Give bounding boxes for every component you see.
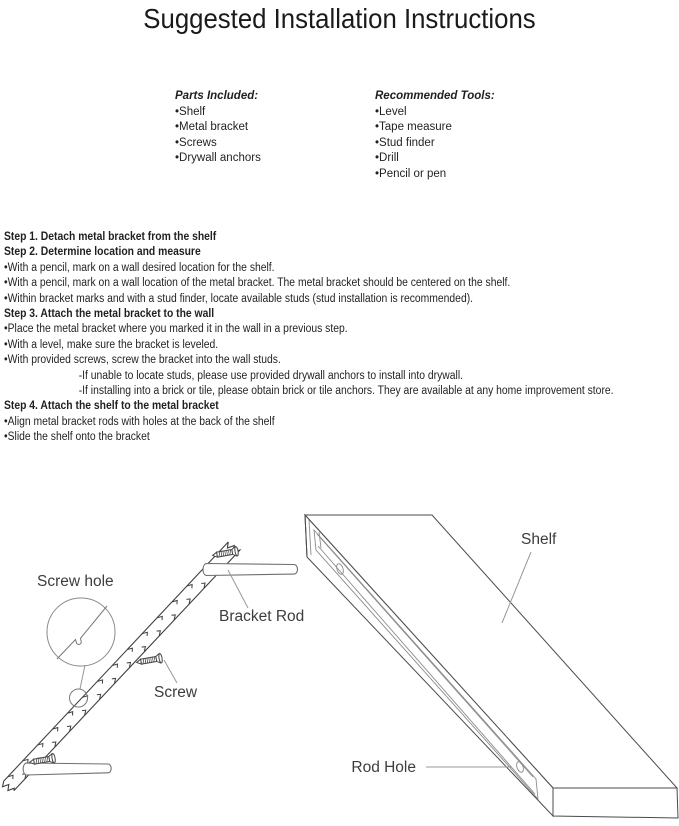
- tools-heading: Recommended Tools:: [375, 89, 495, 105]
- recommended-tools-list: Recommended Tools: •Level •Tape measure …: [375, 89, 495, 182]
- keyhole-slot-profile: [57, 606, 107, 659]
- screw-hole-circle: [70, 689, 88, 707]
- rail-bottom-jagged-cut: [0, 780, 15, 795]
- list-item: •Shelf: [175, 105, 261, 121]
- list-item: •Drywall anchors: [175, 151, 261, 167]
- screw-hole-label: Screw hole: [37, 573, 114, 590]
- step-heading: Step 2. Determine location and measure: [4, 245, 670, 260]
- step-bullet: •Within bracket marks and with a stud fi…: [4, 292, 670, 307]
- list-item: •Stud finder: [375, 136, 495, 152]
- bracket-rod-label: Bracket Rod: [219, 608, 304, 625]
- list-item: •Level: [375, 105, 495, 121]
- step-heading: Step 3. Attach the metal bracket to the …: [4, 307, 670, 322]
- step-subnote: -If unable to locate studs, please use p…: [4, 369, 670, 384]
- step-heading: Step 4. Attach the shelf to the metal br…: [4, 399, 670, 414]
- screw-middle: [136, 653, 163, 667]
- screw-label: Screw: [154, 684, 198, 701]
- parts-heading: Parts Included:: [175, 89, 261, 105]
- list-item: •Tape measure: [375, 120, 495, 136]
- step-bullet: •With a level, make sure the bracket is …: [4, 338, 670, 353]
- bracket-rod-pointer-line: [228, 570, 248, 608]
- list-item: •Pencil or pen: [375, 167, 495, 183]
- step-bullet: •Align metal bracket rods with holes at …: [4, 415, 670, 430]
- list-item: •Metal bracket: [175, 120, 261, 136]
- screw-hole-magnifier: [47, 598, 115, 707]
- step-bullet: •With a pencil, mark on a wall location …: [4, 276, 670, 291]
- bracket-rod-top: [203, 564, 297, 576]
- list-item: •Drill: [375, 151, 495, 167]
- page-title: Suggested Installation Instructions: [27, 3, 652, 35]
- screw-pointer-line: [164, 660, 177, 683]
- step-heading: Step 1. Detach metal bracket from the sh…: [4, 230, 670, 245]
- rod-hole-label: Rod Hole: [351, 759, 416, 776]
- step-bullet: •With provided screws, screw the bracket…: [4, 353, 670, 368]
- shelf-label: Shelf: [521, 531, 557, 548]
- rail-screw-hole-hooks: [8, 559, 222, 786]
- step-bullet: •Place the metal bracket where you marke…: [4, 322, 670, 337]
- magnifier-pointer-line: [80, 665, 85, 689]
- shelf-end-face: [553, 788, 678, 818]
- screw-top: [212, 546, 239, 560]
- step-bullet: •With a pencil, mark on a wall desired l…: [4, 261, 670, 276]
- installation-diagram: Screw hole Bracket Rod Screw Shelf Rod H…: [0, 478, 679, 821]
- step-subnote: -If installing into a brick or tile, ple…: [4, 384, 670, 399]
- instruction-steps: Step 1. Detach metal bracket from the sh…: [4, 230, 670, 446]
- step-bullet: •Slide the shelf onto the bracket: [4, 430, 670, 445]
- parts-included-list: Parts Included: •Shelf •Metal bracket •S…: [175, 89, 261, 167]
- list-item: •Screws: [175, 136, 261, 152]
- bracket-rod-bottom: [23, 763, 111, 775]
